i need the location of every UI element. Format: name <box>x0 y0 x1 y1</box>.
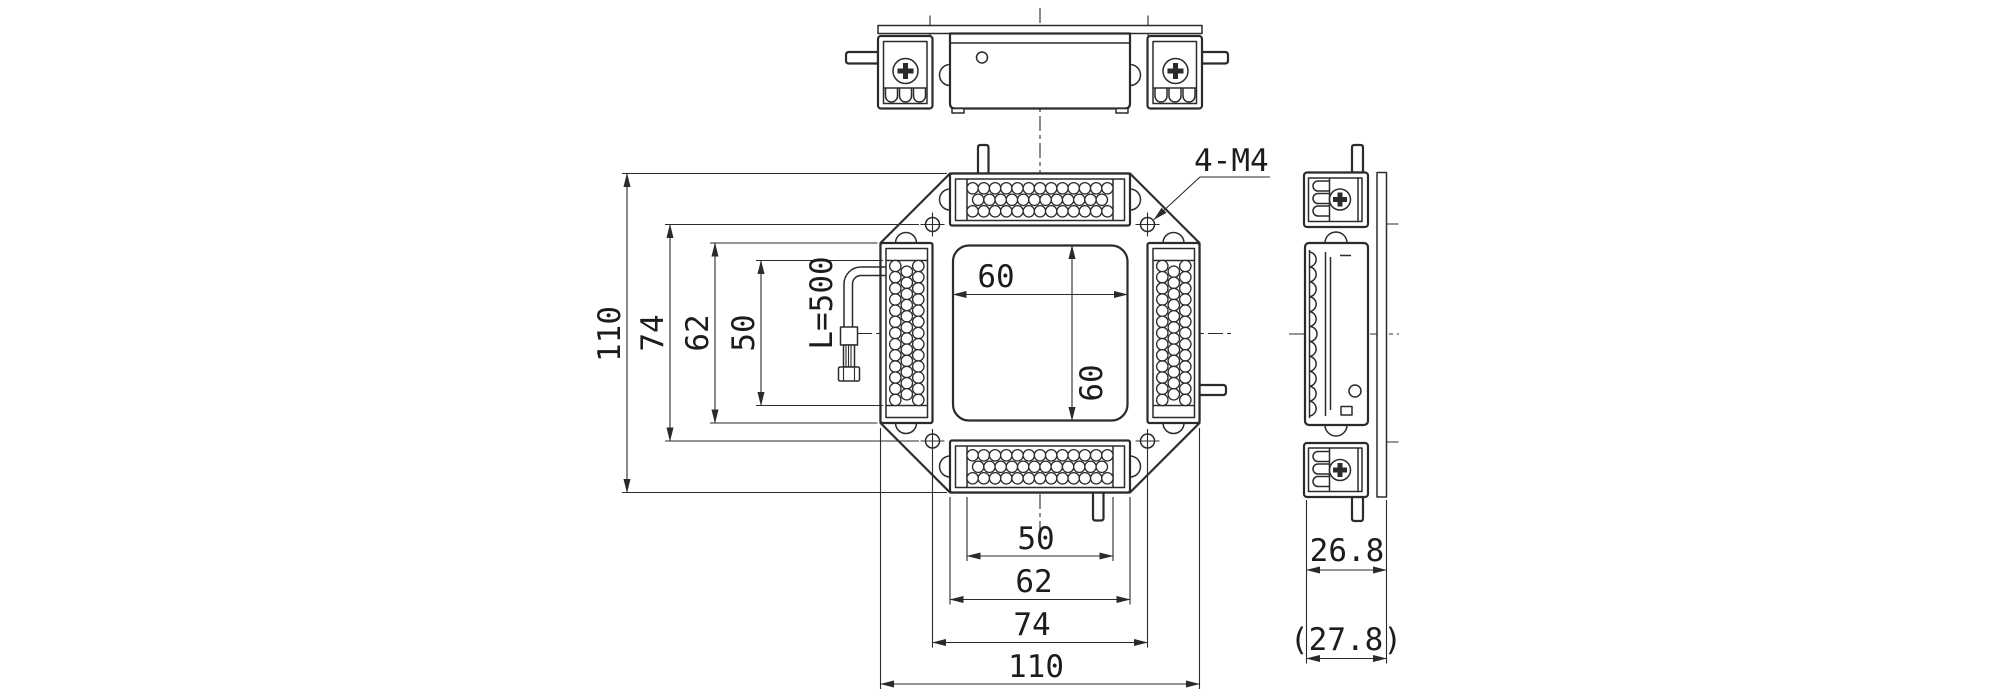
cable-assembly <box>839 267 887 381</box>
led-dot <box>984 194 995 205</box>
dim-window-width: 60 <box>977 259 1014 295</box>
led-dot <box>1046 473 1057 484</box>
dim-bottom-62: 62 <box>1015 564 1052 600</box>
led-dot <box>1057 206 1068 217</box>
led-dot <box>1018 461 1029 472</box>
dim-bottom-74: 74 <box>1013 607 1050 643</box>
led-dot <box>1180 283 1191 294</box>
led-dot <box>1068 450 1079 461</box>
led-dot <box>967 206 978 217</box>
led-dot <box>1018 194 1029 205</box>
terminal-block-right <box>1148 36 1203 109</box>
led-dot <box>890 294 901 305</box>
led-dot <box>1168 355 1179 366</box>
led-dot <box>1006 461 1017 472</box>
led-dot <box>1180 350 1191 361</box>
plate-edge <box>878 26 1202 34</box>
led-dot <box>1068 206 1079 217</box>
led-dot <box>1157 372 1168 383</box>
led-dot <box>1180 294 1191 305</box>
cap-bump <box>1325 425 1347 436</box>
led-dot <box>1168 389 1179 400</box>
dim-side-depth: 26.8 <box>1310 533 1385 569</box>
led-dot <box>1029 461 1040 472</box>
led-dot <box>913 339 924 350</box>
led-dot <box>978 450 989 461</box>
led-dot <box>1168 299 1179 310</box>
led-dot <box>1180 316 1191 327</box>
dim-left-110: 110 <box>592 306 628 362</box>
led-dot <box>1157 327 1168 338</box>
led-dot <box>890 339 901 350</box>
led-dot <box>913 316 924 327</box>
led-dot <box>1168 366 1179 377</box>
top-view <box>846 16 1228 114</box>
led-dot <box>1091 206 1102 217</box>
led-dot <box>1051 194 1062 205</box>
led-dot <box>901 277 912 288</box>
led-dot <box>1006 194 1017 205</box>
led-dot <box>1180 272 1191 283</box>
led-dot <box>973 461 984 472</box>
led-dot <box>1057 183 1068 194</box>
dim-left-62: 62 <box>680 314 716 351</box>
led-dot <box>890 316 901 327</box>
led-dot <box>995 194 1006 205</box>
led-dot <box>1001 450 1012 461</box>
led-dot <box>978 206 989 217</box>
led-dot <box>1079 473 1090 484</box>
terminal-block-left <box>878 36 933 109</box>
led-dot <box>1085 461 1096 472</box>
led-dot <box>989 206 1000 217</box>
led-dot <box>978 183 989 194</box>
led-dot <box>913 383 924 394</box>
cable-length-label: L=500 <box>804 256 840 349</box>
led-dot <box>1168 266 1179 277</box>
technical-drawing-canvas: 110 74 62 50 50 62 74 110 60 60 L=500 4-… <box>0 0 2000 700</box>
cap-bump <box>1130 65 1141 86</box>
left-pin <box>846 52 878 64</box>
led-dot <box>1062 194 1073 205</box>
led-dot <box>1074 461 1085 472</box>
led-dot <box>1001 206 1012 217</box>
led-dot <box>1023 450 1034 461</box>
dim-bottom-50: 50 <box>1017 521 1054 557</box>
right-pin <box>1202 52 1228 64</box>
led-dot <box>1168 344 1179 355</box>
led-dot <box>890 383 901 394</box>
led-dot <box>1012 183 1023 194</box>
top-pin <box>1352 145 1363 173</box>
led-dot <box>1102 473 1113 484</box>
led-dot <box>1057 450 1068 461</box>
led-dot <box>1029 194 1040 205</box>
led-module-left <box>881 243 933 423</box>
led-dot <box>989 473 1000 484</box>
led-dot <box>890 394 901 405</box>
led-dot <box>1168 311 1179 322</box>
led-dot <box>1012 450 1023 461</box>
led-dot <box>1079 206 1090 217</box>
led-dot <box>890 272 901 283</box>
led-dot <box>1034 473 1045 484</box>
led-dot <box>1012 206 1023 217</box>
led-dot <box>901 266 912 277</box>
led-dot <box>901 322 912 333</box>
led-dot <box>901 378 912 389</box>
led-dot <box>1046 450 1057 461</box>
led-dot <box>913 372 924 383</box>
dim-side-depth-overall: (27.8) <box>1290 622 1402 658</box>
led-dot <box>1079 450 1090 461</box>
led-dot <box>995 461 1006 472</box>
led-dot <box>890 361 901 372</box>
led-dot <box>1157 383 1168 394</box>
led-dot <box>1068 183 1079 194</box>
cap-bump <box>1325 232 1347 243</box>
led-dot <box>1091 450 1102 461</box>
led-dot <box>901 355 912 366</box>
led-dot <box>890 283 901 294</box>
plate-edge <box>1377 173 1387 498</box>
led-module-bottom <box>950 441 1130 493</box>
led-dot <box>1157 283 1168 294</box>
front-view <box>839 145 1227 521</box>
terminal-block-top <box>1304 173 1368 228</box>
led-dot <box>1180 260 1191 271</box>
led-dot <box>913 294 924 305</box>
dim-bottom-110: 110 <box>1008 649 1064 685</box>
led-dot <box>1102 450 1113 461</box>
led-dot <box>901 344 912 355</box>
led-dot <box>1180 372 1191 383</box>
led-dot <box>1023 206 1034 217</box>
cap-bump <box>940 65 951 86</box>
led-dot <box>967 450 978 461</box>
led-dot <box>1168 333 1179 344</box>
led-dot <box>1034 183 1045 194</box>
led-dot <box>1180 305 1191 316</box>
led-dot <box>890 350 901 361</box>
led-dot <box>1023 183 1034 194</box>
led-dot <box>1168 288 1179 299</box>
led-dot <box>984 461 995 472</box>
led-dot <box>1001 473 1012 484</box>
led-dot <box>1102 206 1113 217</box>
led-dot <box>1040 194 1051 205</box>
led-module-top <box>950 174 1130 226</box>
led-dot <box>913 361 924 372</box>
led-dot <box>967 183 978 194</box>
thread-callout-label: 4-M4 <box>1194 143 1269 179</box>
led-dot <box>913 327 924 338</box>
led-dot <box>890 305 901 316</box>
dim-window-height: 60 <box>1074 364 1110 401</box>
led-dot <box>1034 450 1045 461</box>
led-dot <box>901 333 912 344</box>
right-pin <box>1200 385 1227 395</box>
led-dot <box>1180 327 1191 338</box>
led-dot <box>1157 339 1168 350</box>
led-dot <box>913 305 924 316</box>
led-dot <box>1157 361 1168 372</box>
led-dot <box>1180 383 1191 394</box>
led-dot <box>913 260 924 271</box>
led-dot <box>1102 183 1113 194</box>
led-dot <box>913 394 924 405</box>
connector-body <box>841 327 858 345</box>
led-dot <box>1034 206 1045 217</box>
led-dot <box>1168 322 1179 333</box>
led-dot <box>1046 183 1057 194</box>
led-dot <box>1168 277 1179 288</box>
led-dot <box>890 372 901 383</box>
dim-left-50: 50 <box>726 314 762 351</box>
led-dot <box>913 283 924 294</box>
led-dot <box>1085 194 1096 205</box>
led-dot <box>1180 339 1191 350</box>
led-dot <box>1001 183 1012 194</box>
bottom-pin <box>1352 497 1363 521</box>
led-dot <box>913 272 924 283</box>
led-dot <box>1157 294 1168 305</box>
led-dot <box>1096 461 1107 472</box>
led-dot <box>978 473 989 484</box>
led-dot <box>1062 461 1073 472</box>
led-dot <box>1091 183 1102 194</box>
foot <box>952 109 964 114</box>
led-dot <box>1068 473 1079 484</box>
led-dot <box>901 389 912 400</box>
led-dot <box>890 260 901 271</box>
led-dot <box>1046 206 1057 217</box>
led-dot <box>1157 350 1168 361</box>
led-dot <box>1057 473 1068 484</box>
led-dot <box>1157 394 1168 405</box>
led-dot <box>1157 260 1168 271</box>
leader-line <box>1154 177 1270 220</box>
led-dot <box>1157 272 1168 283</box>
foot <box>1116 109 1128 114</box>
led-dot <box>1180 394 1191 405</box>
led-dot <box>1168 378 1179 389</box>
side-view <box>1304 145 1399 521</box>
led-dot <box>1051 461 1062 472</box>
led-dot <box>901 299 912 310</box>
led-dot <box>973 194 984 205</box>
led-dot <box>1180 361 1191 372</box>
led-dot <box>1096 194 1107 205</box>
led-dot <box>1079 183 1090 194</box>
led-dot <box>1157 305 1168 316</box>
drawing-svg: 110 74 62 50 50 62 74 110 60 60 L=500 4-… <box>0 0 2000 700</box>
led-dot <box>1012 473 1023 484</box>
led-dot <box>1023 473 1034 484</box>
top-pin <box>978 145 989 174</box>
led-dot <box>901 311 912 322</box>
led-dot <box>1157 316 1168 327</box>
led-dot <box>913 350 924 361</box>
terminal-block-bottom <box>1304 443 1368 497</box>
led-housing-top-view <box>950 34 1130 109</box>
led-dot <box>901 288 912 299</box>
led-dot <box>1040 461 1051 472</box>
bottom-pin <box>1093 493 1104 521</box>
connector-plug <box>839 367 860 381</box>
led-dot <box>989 183 1000 194</box>
led-body-side <box>1305 243 1368 425</box>
led-dot <box>890 327 901 338</box>
led-dot <box>989 450 1000 461</box>
led-dot <box>967 473 978 484</box>
led-dot <box>901 366 912 377</box>
dim-left-74: 74 <box>635 314 671 351</box>
led-dot <box>1074 194 1085 205</box>
led-dot <box>1091 473 1102 484</box>
led-module-right <box>1148 243 1200 423</box>
